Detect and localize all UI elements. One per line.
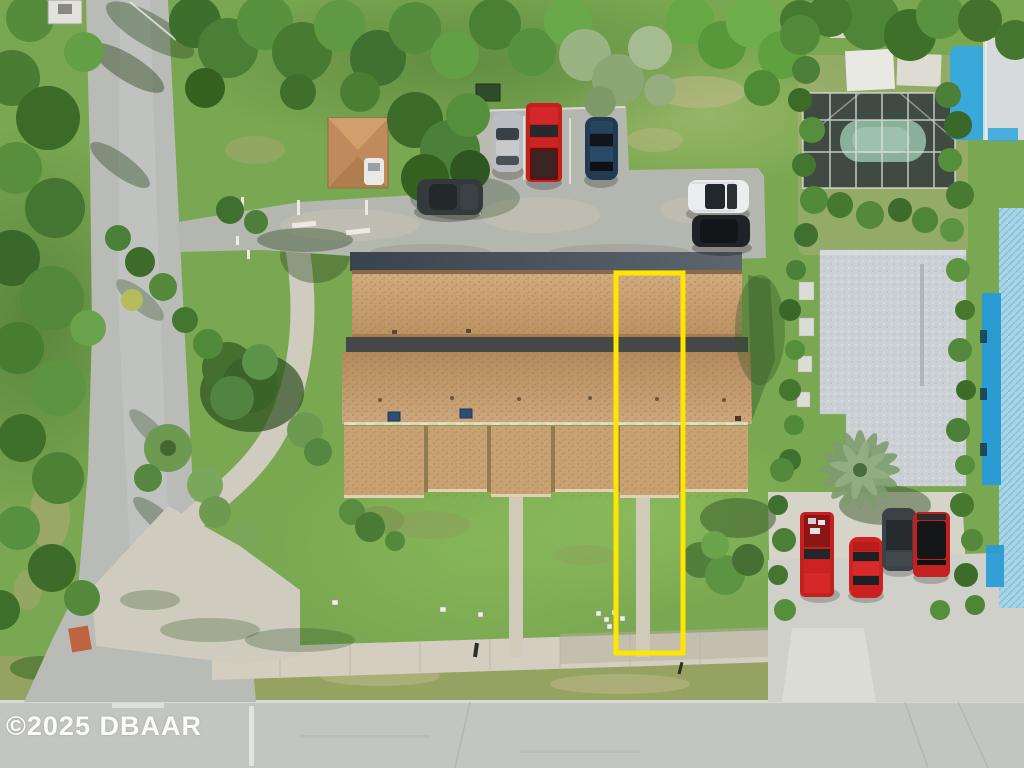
driveway-jeep-red [913,512,950,584]
shed [328,118,388,188]
survey-markers [332,600,625,629]
road-edge-line [249,706,254,766]
pool-enclosure [803,93,955,188]
aerial-photo: ©2025 DBAAR [0,0,1024,768]
skylight [460,409,472,418]
parking-car-navy [584,117,618,188]
watermark: ©2025 DBAAR [6,711,202,742]
roof-valley [346,337,748,353]
stop-line [112,703,164,708]
skylight [388,412,400,421]
parking-car-dark-sedan [414,179,483,222]
parking-truck-red [526,103,562,190]
parking-car-silver [492,112,524,180]
curb-ramp [68,625,92,652]
driveway-suv-gray [882,508,916,577]
driveway-apron [782,628,876,702]
scene-graphic [0,0,1024,768]
driveway-truck-red [800,512,840,603]
blue-tarp-building [980,208,1024,608]
lanai-roof [845,49,895,91]
front-roof-sections [344,426,748,498]
parking-suv-black [692,215,752,256]
driveway-car-red [848,537,884,603]
townhouse-building [342,270,775,498]
white-cart [364,158,384,185]
building-shadow [350,252,742,271]
